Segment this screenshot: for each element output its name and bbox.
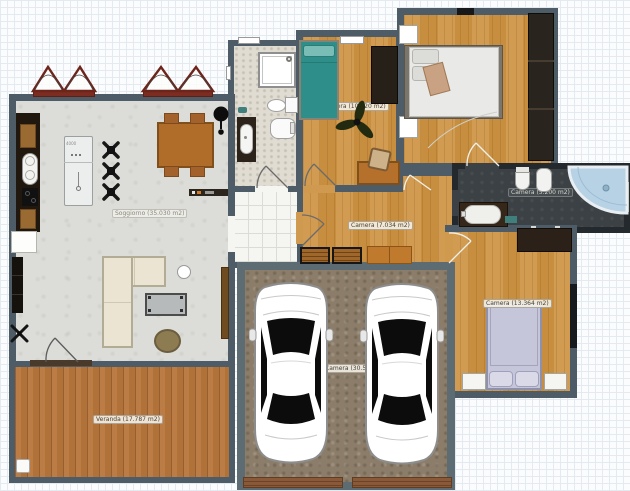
window[interactable] <box>238 37 260 44</box>
garage-door[interactable] <box>243 477 343 488</box>
window[interactable] <box>399 25 418 44</box>
pillow <box>303 45 335 57</box>
kitchen-shelf <box>20 124 36 148</box>
car[interactable] <box>249 276 333 468</box>
dining-table[interactable] <box>157 122 214 168</box>
sink-basin <box>240 124 253 154</box>
shelf-item <box>192 191 195 194</box>
toilet-bowl[interactable] <box>267 99 286 112</box>
kitchen-island-fridge[interactable] <box>64 136 93 206</box>
door-opening <box>465 163 499 171</box>
window[interactable] <box>399 116 418 138</box>
fridge-handle-icon <box>78 172 79 186</box>
cooktop[interactable] <box>22 188 38 206</box>
knob-icons <box>71 154 73 156</box>
pouf[interactable] <box>154 329 181 353</box>
table-corner <box>180 309 183 312</box>
toilet-tank[interactable] <box>285 97 298 113</box>
burner-icon <box>31 198 36 203</box>
table-corner <box>148 296 151 299</box>
side-table[interactable] <box>177 265 191 279</box>
awning-window[interactable] <box>33 67 95 91</box>
toilet-bowl[interactable] <box>515 172 530 190</box>
door-opening <box>296 212 303 244</box>
burner-icon <box>25 191 30 196</box>
nightstand[interactable] <box>544 373 567 390</box>
dining-chair[interactable] <box>190 113 205 124</box>
shelf-item <box>205 191 214 194</box>
bookshelf-line <box>12 275 23 276</box>
bookshelf[interactable] <box>12 257 23 313</box>
bookshelf-line <box>12 294 23 295</box>
floorplan-canvas[interactable]: 4000 Camera (10.020 m2) <box>0 0 630 491</box>
bathtub-basin[interactable] <box>464 205 501 224</box>
wall-notch <box>457 8 474 15</box>
window-sill[interactable] <box>143 91 213 97</box>
bidet-tap <box>290 122 295 134</box>
door-opening <box>452 190 458 216</box>
room-label: Veranda (17.787 m2) <box>93 415 163 424</box>
sofa-cushion-line <box>104 302 131 303</box>
garage-door[interactable] <box>352 477 452 488</box>
island-dimension-label: 4000 <box>66 141 76 146</box>
island-divider <box>64 162 93 163</box>
room-label: Soggiorno (35.030 m2) <box>112 209 187 218</box>
room-label: Camera (7.034 m2) <box>348 221 413 230</box>
room-vestibule[interactable] <box>228 185 303 268</box>
fridge-handle-icon <box>76 186 81 191</box>
window-sill[interactable] <box>33 91 95 97</box>
pillow <box>412 49 439 64</box>
soap-dish <box>238 107 247 113</box>
bath-mat <box>505 216 517 223</box>
wardrobe[interactable] <box>528 13 554 161</box>
veranda-step <box>16 459 30 473</box>
wardrobe-divider <box>528 60 554 62</box>
pillow <box>489 371 513 387</box>
bidet[interactable] <box>536 168 552 192</box>
window[interactable] <box>340 36 364 44</box>
nightstand[interactable] <box>462 373 486 390</box>
faucet-icon <box>461 211 466 217</box>
door-opening <box>228 216 235 252</box>
sofa-cushion-line <box>134 258 135 285</box>
door-threshold <box>30 360 92 366</box>
car[interactable] <box>360 277 444 469</box>
door-opening <box>255 186 288 192</box>
duvet-line <box>490 306 538 366</box>
door-opening <box>445 232 453 262</box>
wardrobe[interactable] <box>371 46 398 104</box>
dining-chair[interactable] <box>190 166 205 177</box>
dining-chair[interactable] <box>164 113 179 124</box>
door-right[interactable] <box>620 182 629 212</box>
showerhead-icon <box>286 56 292 62</box>
room-label: Camera (13.364 m2) <box>483 299 552 308</box>
slatted-sideboard[interactable] <box>332 247 362 264</box>
faucet-icon <box>244 136 247 139</box>
wardrobe[interactable] <box>517 228 572 252</box>
kitchen-shelf <box>20 209 36 229</box>
window[interactable] <box>226 66 231 80</box>
cabinet-white[interactable] <box>11 231 37 253</box>
awning-window[interactable] <box>143 67 213 91</box>
table-corner <box>180 296 183 299</box>
desk-chair[interactable] <box>367 147 392 172</box>
sink-bowl-icon <box>25 156 35 166</box>
window-dark[interactable] <box>570 284 577 348</box>
wardrobe-divider <box>528 108 554 110</box>
blanket-line <box>301 62 337 63</box>
cabinet-divider <box>389 246 390 264</box>
slatted-sideboard[interactable] <box>300 247 330 264</box>
tv-sideboard[interactable] <box>221 267 229 339</box>
dining-chair[interactable] <box>164 166 179 177</box>
pillow <box>515 371 539 387</box>
door-opening <box>303 185 335 193</box>
shelf-item <box>197 191 201 194</box>
sink-bowl-icon <box>25 170 35 180</box>
table-corner <box>148 309 151 312</box>
